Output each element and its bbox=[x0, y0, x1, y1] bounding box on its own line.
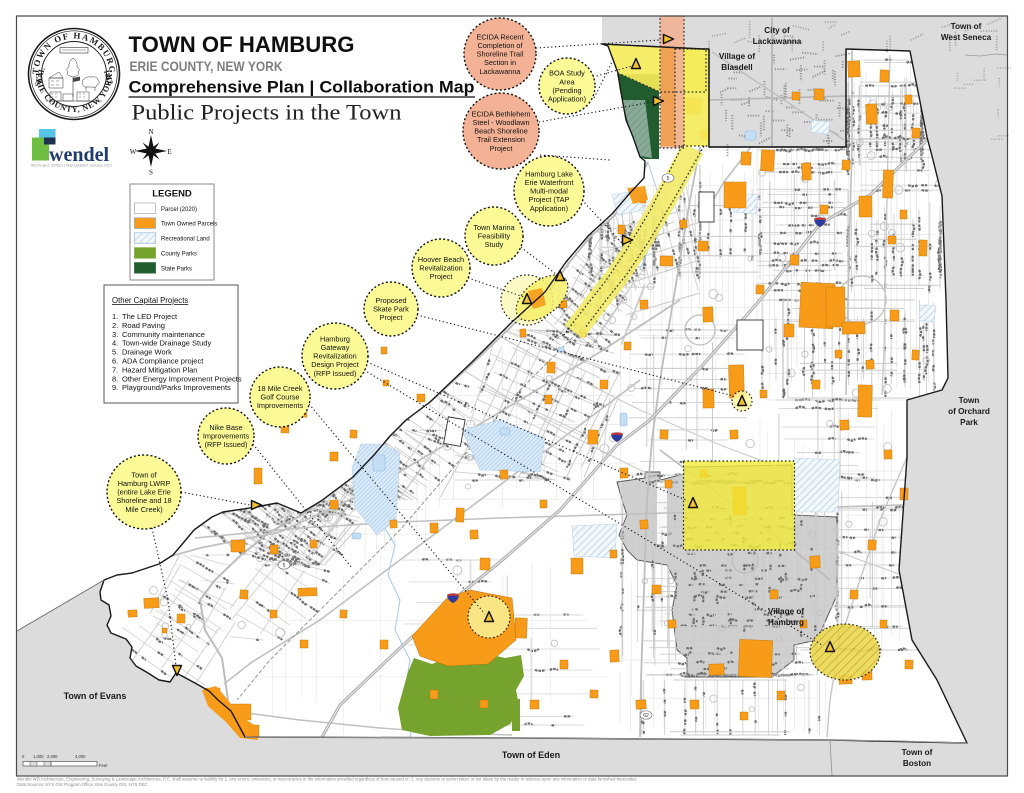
svg-text:Wendel WD Architecture, Engine: Wendel WD Architecture, Engineering, Sur… bbox=[17, 777, 637, 782]
svg-text:Town of Eden: Town of Eden bbox=[502, 750, 560, 760]
svg-text:County Parks: County Parks bbox=[161, 252, 197, 258]
svg-text:Community maintenance: Community maintenance bbox=[122, 330, 205, 339]
svg-text:ADA Compliance project: ADA Compliance project bbox=[122, 357, 204, 366]
svg-text:State Parks: State Parks bbox=[161, 266, 192, 272]
svg-text:The LED Project: The LED Project bbox=[122, 312, 178, 321]
svg-text:Feet: Feet bbox=[99, 763, 108, 768]
svg-text:E: E bbox=[167, 148, 171, 156]
svg-text:City of: City of bbox=[764, 26, 790, 35]
svg-text:Public Projects in the Town: Public Projects in the Town bbox=[132, 100, 402, 125]
svg-text:Lackawanna: Lackawanna bbox=[480, 67, 522, 76]
svg-text:Other Energy Improvement Proje: Other Energy Improvement Projects bbox=[122, 374, 242, 383]
svg-text:Project: Project bbox=[430, 272, 453, 281]
svg-text:Town of: Town of bbox=[951, 22, 982, 31]
svg-text:6.: 6. bbox=[112, 357, 118, 366]
svg-text:LEGEND: LEGEND bbox=[152, 189, 192, 200]
svg-text:Playground/Parks Improvements: Playground/Parks Improvements bbox=[122, 383, 231, 392]
svg-text:Road Paving: Road Paving bbox=[122, 321, 165, 330]
svg-text:Comprehensive Plan | Collabora: Comprehensive Plan | Collaboration Map bbox=[129, 78, 475, 97]
svg-text:TOWN OF HAMBURG: TOWN OF HAMBURG bbox=[129, 32, 355, 57]
svg-text:Hamburg: Hamburg bbox=[768, 618, 804, 627]
svg-text:2.: 2. bbox=[112, 321, 118, 330]
svg-text:Village of: Village of bbox=[719, 52, 756, 61]
svg-text:5: 5 bbox=[667, 176, 670, 182]
svg-text:4,000: 4,000 bbox=[75, 754, 86, 759]
svg-text:Blasdell: Blasdell bbox=[721, 63, 752, 72]
svg-text:Other Capital Projects: Other Capital Projects bbox=[112, 296, 188, 305]
svg-text:1.: 1. bbox=[112, 312, 118, 321]
svg-text:Project: Project bbox=[490, 144, 513, 153]
svg-text:Town Owned Parcels: Town Owned Parcels bbox=[161, 222, 217, 228]
svg-text:7.: 7. bbox=[112, 365, 118, 374]
svg-text:Recreational Land: Recreational Land bbox=[161, 237, 210, 243]
svg-text:W: W bbox=[130, 148, 137, 156]
svg-text:Study: Study bbox=[485, 240, 504, 249]
svg-text:Drainage Work: Drainage Work bbox=[122, 348, 172, 357]
svg-text:Town-wide Drainage Study: Town-wide Drainage Study bbox=[122, 339, 211, 348]
svg-text:Application): Application) bbox=[548, 95, 586, 104]
svg-text:Application): Application) bbox=[530, 204, 568, 213]
svg-text:WD Project: 300821 | Map Updat: WD Project: 300821 | Map Updated: Januar… bbox=[31, 164, 112, 168]
svg-text:4.: 4. bbox=[112, 339, 118, 348]
svg-text:Improvements: Improvements bbox=[257, 401, 304, 410]
svg-text:Village of: Village of bbox=[768, 607, 805, 616]
svg-text:9.: 9. bbox=[112, 383, 118, 392]
svg-text:of Orchard: of Orchard bbox=[948, 407, 990, 416]
svg-text:Lackawanna: Lackawanna bbox=[753, 37, 802, 46]
svg-text:Data Sources: NYS GIS Program: Data Sources: NYS GIS Program Office, Er… bbox=[17, 782, 148, 787]
svg-text:8.: 8. bbox=[112, 374, 118, 383]
svg-text:Project: Project bbox=[380, 313, 403, 322]
svg-text:62: 62 bbox=[643, 713, 649, 719]
svg-text:West Seneca: West Seneca bbox=[941, 33, 992, 42]
svg-text:(RFP Issued): (RFP Issued) bbox=[314, 369, 357, 378]
svg-text:5.: 5. bbox=[112, 348, 118, 357]
svg-text:1,000: 1,000 bbox=[33, 754, 44, 759]
svg-text:Park: Park bbox=[960, 418, 978, 427]
svg-text:Town: Town bbox=[959, 396, 980, 405]
svg-text:2,000: 2,000 bbox=[47, 754, 58, 759]
svg-text:S: S bbox=[149, 169, 153, 177]
svg-text:N: N bbox=[148, 128, 153, 136]
svg-text:Mile Creek): Mile Creek) bbox=[125, 505, 162, 514]
svg-text:Town of: Town of bbox=[902, 748, 933, 757]
svg-text:3.: 3. bbox=[112, 330, 118, 339]
svg-text:Parcel (2020): Parcel (2020) bbox=[161, 207, 197, 213]
svg-text:Hazard Mitigation Plan: Hazard Mitigation Plan bbox=[122, 365, 197, 374]
svg-text:ERIE COUNTY, NEW YORK: ERIE COUNTY, NEW YORK bbox=[130, 58, 283, 74]
svg-text:Boston: Boston bbox=[903, 759, 931, 768]
svg-text:(RFP Issued): (RFP Issued) bbox=[205, 440, 248, 449]
svg-text:5: 5 bbox=[283, 563, 286, 569]
svg-text:Town of Evans: Town of Evans bbox=[64, 691, 127, 701]
